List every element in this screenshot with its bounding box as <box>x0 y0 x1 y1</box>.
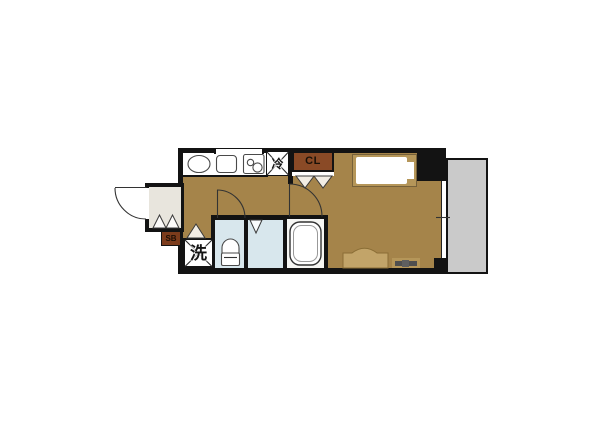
kitchen-window <box>216 149 262 153</box>
bed-pillow <box>406 162 414 179</box>
bathroom <box>248 220 283 268</box>
kitchen-window-tick-right <box>262 148 264 154</box>
balcony <box>448 160 486 272</box>
shoe-box-label: SB <box>161 231 181 246</box>
southeast-wall-stub <box>434 258 446 274</box>
pipe-space <box>417 148 446 181</box>
bathtub-floor <box>287 219 324 268</box>
toilet-room <box>215 220 244 268</box>
washing-machine-label: 洗 <box>183 238 214 268</box>
kitchen-counter <box>183 153 268 177</box>
closet-floor-strip <box>292 172 334 176</box>
kitchen-window-tick-left <box>214 148 216 154</box>
bed-mattress <box>356 157 407 184</box>
entrance-door-opening <box>144 188 149 219</box>
floorplan-canvas: 冷 CL SB 洗 <box>0 0 600 425</box>
entrance-door-swing <box>115 188 147 220</box>
refrigerator-label: 冷 <box>266 151 289 176</box>
tv-stand-center <box>402 260 409 267</box>
entrance-floor <box>149 187 181 228</box>
closet-label: CL <box>292 151 334 171</box>
